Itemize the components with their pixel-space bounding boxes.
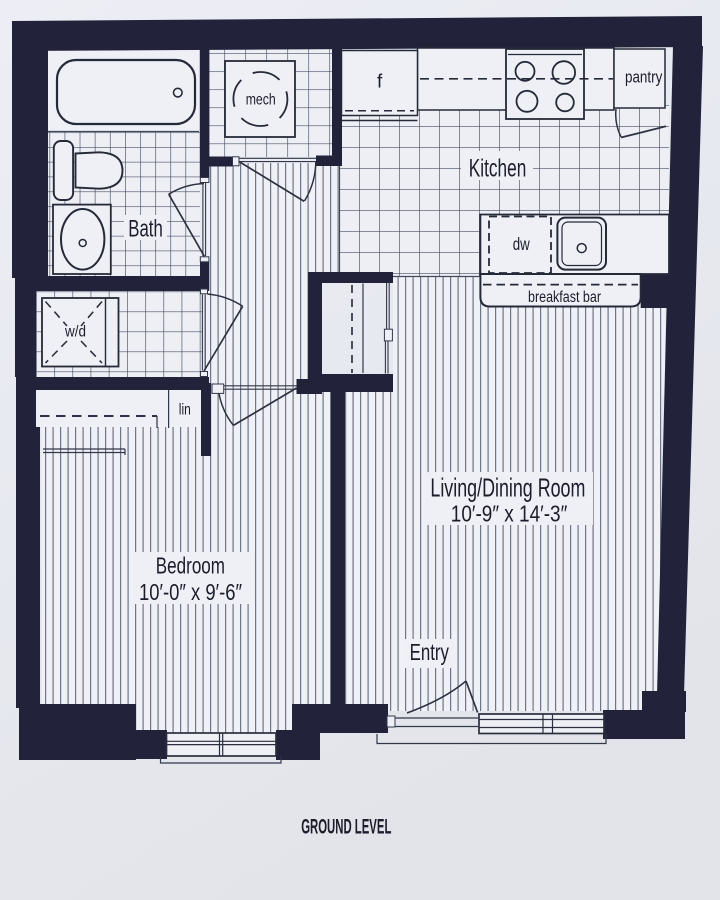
svg-text:mech: mech (246, 92, 276, 109)
svg-text:10′-9″ x 14′-3″: 10′-9″ x 14′-3″ (451, 501, 568, 527)
svg-text:Bedroom: Bedroom (156, 553, 225, 579)
svg-text:dw: dw (513, 234, 530, 254)
svg-text:lin: lin (179, 402, 191, 419)
svg-text:Living/Dining Room: Living/Dining Room (430, 472, 585, 502)
svg-text:GROUND LEVEL: GROUND LEVEL (301, 816, 391, 839)
svg-text:breakfast bar: breakfast bar (528, 289, 601, 306)
svg-text:Bath: Bath (128, 216, 163, 243)
svg-text:10′-0″ x 9′-6″: 10′-0″ x 9′-6″ (139, 579, 242, 605)
svg-text:w/d: w/d (64, 324, 86, 341)
svg-text:Kitchen: Kitchen (469, 154, 527, 182)
svg-text:Entry: Entry (410, 639, 450, 665)
svg-text:f: f (377, 72, 383, 93)
svg-text:pantry: pantry (625, 67, 663, 86)
